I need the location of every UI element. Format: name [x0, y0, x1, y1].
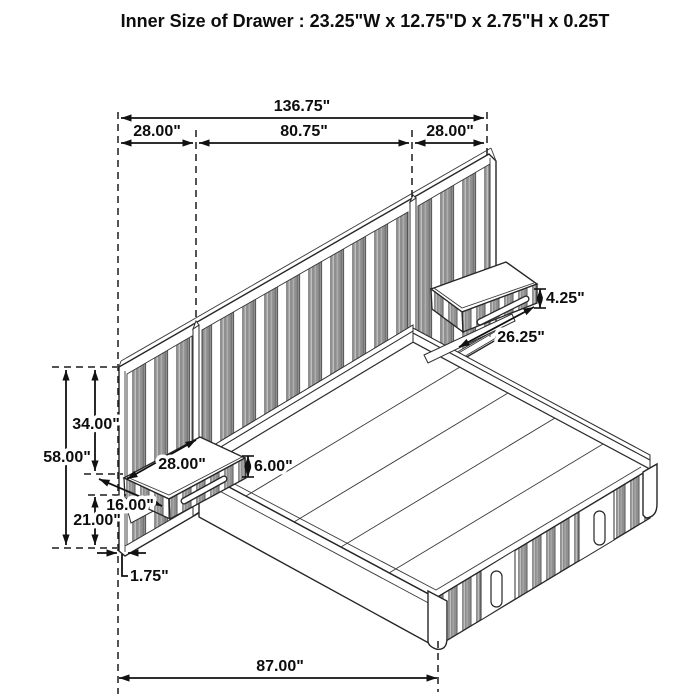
dim-wing-left-width: 28.00" — [133, 123, 181, 140]
corner-post-foot — [428, 591, 447, 649]
dim-nightstand-right-width: 26.25" — [497, 329, 545, 346]
bed-dimension-diagram: 136.75" 28.00" 80.75" 28.00" 58.00" 34.0… — [0, 0, 700, 700]
bed-dimension-diagram-page: 136.75" 28.00" 80.75" 28.00" 58.00" 34.0… — [0, 0, 700, 700]
dim-nightstand-right-height: 4.25" — [546, 290, 585, 307]
dim-nightstand-left-front: 16.00" — [106, 497, 154, 514]
drawer-handle-cutout — [594, 511, 605, 545]
dim-nightstand-left-height: 6.00" — [254, 458, 293, 475]
dim-floor-offset: 1.75" — [130, 568, 169, 585]
dim-lower-height: 21.00" — [73, 512, 121, 529]
drawer-handle-cutout — [491, 571, 502, 607]
diagram-title: Inner Size of Drawer : 23.25"W x 12.75"D… — [121, 11, 610, 31]
dim-upper-height: 34.00" — [72, 416, 120, 433]
dim-headboard-height: 58.00" — [43, 449, 91, 466]
dim-overall-width: 136.75" — [274, 98, 331, 115]
dim-nightstand-left-depth: 28.00" — [158, 456, 206, 473]
dim-wing-right-width: 28.00" — [426, 123, 474, 140]
corner-post-right — [643, 464, 657, 518]
dim-platform-length: 87.00" — [256, 658, 304, 675]
dim-center-width: 80.75" — [280, 123, 328, 140]
